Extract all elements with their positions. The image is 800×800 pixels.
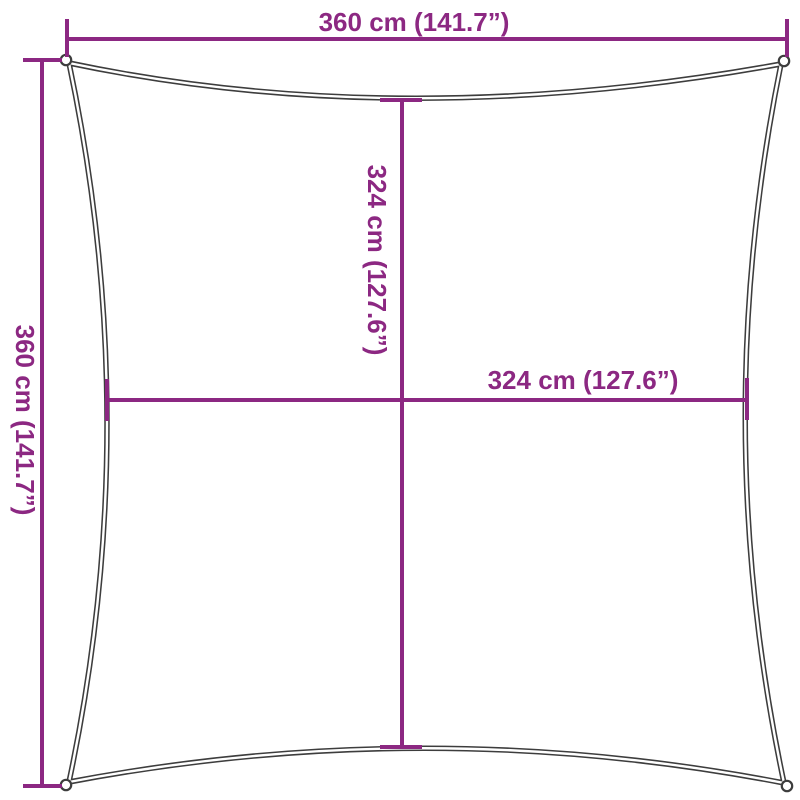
sail-edge-inner-gap [69, 63, 784, 783]
top-width-label: 360 cm (141.7”) [319, 7, 510, 37]
shade-sail-dimension-diagram: 360 cm (141.7”) 360 cm (141.7”) 324 cm (… [0, 0, 800, 800]
sail-edge-path [69, 63, 784, 783]
inner-height-label: 324 cm (127.6”) [362, 165, 392, 356]
corner-ring-bottom-left [61, 780, 71, 790]
dimension-lines [23, 19, 787, 786]
dimension-diagram-canvas: 360 cm (141.7”) 360 cm (141.7”) 324 cm (… [0, 0, 800, 800]
inner-width-label: 324 cm (127.6”) [488, 365, 679, 395]
sail-outline [61, 55, 792, 791]
left-height-label: 360 cm (141.7”) [10, 325, 40, 516]
corner-ring-bottom-right [782, 781, 792, 791]
dimension-labels: 360 cm (141.7”) 360 cm (141.7”) 324 cm (… [10, 7, 678, 515]
corner-ring-top-right [779, 56, 789, 66]
